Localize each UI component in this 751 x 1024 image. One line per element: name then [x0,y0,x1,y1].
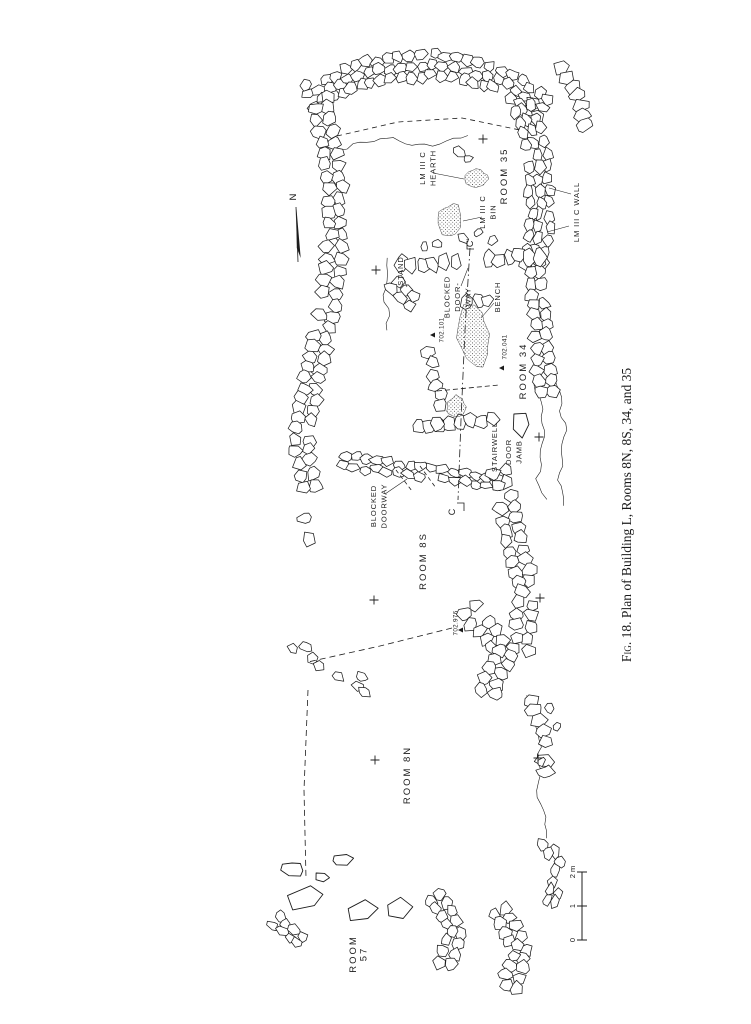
wall-room34-west-stones [421,347,448,432]
survey-cross [372,266,381,275]
stone [281,863,303,876]
stone [494,667,507,680]
stone [359,687,371,697]
survey-cross [479,135,488,144]
stone [525,267,537,280]
survey-cross [536,594,545,603]
wall-room57-east-cluster [426,889,467,971]
stone [438,253,450,271]
stone [357,671,369,681]
stone [523,609,538,621]
label-line: ROOM 8N [402,746,413,804]
stone [305,339,321,352]
label-line: JAMB [514,440,523,464]
site-plan-figure: LM III CHEARTHROOM 35LM III CBINLM III C… [0,0,751,1024]
stone [287,643,297,653]
stone [500,901,513,915]
scanned-figure-page: LM III CHEARTHROOM 35LM III CBINLM III C… [0,0,751,1024]
stone [405,63,417,72]
wall-divider-8s-8n [456,600,517,700]
elevation-value: 702.976 [453,610,460,635]
wall-west-wall [288,90,350,493]
label-lm-iiic-wall: LM III C WALL [572,182,581,242]
stone [474,229,483,237]
stone [493,481,506,491]
stone [315,274,332,287]
stone [414,49,428,60]
hearth-fill [465,169,489,188]
stone [444,416,456,431]
label-room-34: ROOM 34 [518,343,529,400]
label-line: DOOR [504,439,513,465]
label-door-jamb: DOORJAMB [504,439,524,465]
stone [524,218,534,231]
stone [522,644,536,657]
stone [525,174,535,186]
stone [533,220,543,233]
stone [525,621,537,634]
stone [533,374,546,387]
west-robbed [304,690,308,878]
label-line: STAIRWELL [490,422,499,472]
stone [471,481,482,490]
stone [304,532,316,547]
survey-cross [371,756,380,765]
survey-cross [370,596,379,605]
elevation-value: 702.101 [439,317,446,342]
wall-west-frag-8s [297,513,316,547]
stone [335,238,349,253]
label-line: BIN [488,204,497,219]
north-arrow: N [288,193,301,262]
svg-text:Fig. 18. Plan of Building L, R: Fig. 18. Plan of Building L, Rooms 8N, 8… [619,368,634,662]
stone [330,148,344,160]
section-marker-c: C [447,503,464,515]
stone [402,50,415,62]
stone [308,466,320,481]
stone [334,252,349,265]
stone [518,126,529,139]
wavy-line [341,136,468,151]
section-bracket [457,503,464,511]
label-bench: BENCH [493,282,502,313]
label-line: LM III C WALL [572,182,581,242]
stone [509,618,524,631]
scale-bar: 012 m [568,866,587,942]
label-stand: STAND [396,256,405,285]
stone [311,309,327,321]
svg-text:C: C [447,508,457,515]
stone [513,413,529,438]
stone [438,473,449,482]
stone [297,481,311,493]
label-room-8n: ROOM 8N [402,746,413,804]
stone [433,956,446,970]
label-lm-iiic-bin: LM III CBIN [478,195,498,228]
wavy-line [383,258,390,330]
wall-east-stones-lower [537,839,565,909]
label-room-35: ROOM 35 [499,148,510,205]
stone-walls [267,48,593,994]
stone [534,278,547,291]
stone [432,239,442,247]
wall-room57-west-cluster [267,910,308,947]
elevation-triangle-icon [499,366,504,371]
wall-ne-fragment [554,61,593,133]
stone [545,703,555,714]
stone [315,285,330,298]
label-line: BLOCKED [369,485,378,527]
stone [527,98,536,111]
stone [299,642,312,652]
stone [294,470,307,483]
stone [543,147,554,160]
label-line: BENCH [493,282,502,313]
stone [523,230,534,243]
stone [544,847,554,861]
stone [447,61,460,73]
wall-lm-iiic-east-wall [511,98,556,269]
section-marker-c-prime: C' [465,239,475,249]
label-line: LM III C [418,151,427,184]
scale-bar-label: 2 m [568,866,577,879]
stone [373,74,386,87]
stone [290,433,301,446]
wavy-line [534,382,547,499]
label-stairwell: STAIRWELL [490,422,499,472]
elevation-marker: 702.101 [430,317,446,342]
label-line: DOORWAY [379,484,388,529]
stone [545,185,556,196]
elevation-marker: 702.041 [499,334,509,370]
stone [508,512,523,523]
label-lm-iiic-hearth: LM III CHEARTH [418,150,438,186]
stone [406,72,418,85]
stone [308,104,323,114]
stone [500,980,513,992]
bin-fill [438,204,461,236]
stone [492,502,509,516]
stone [531,343,544,357]
figure-caption: Fig. 18. Plan of Building L, Rooms 8N, 8… [619,368,634,662]
scale-bar-label: 0 [568,938,577,942]
stone [480,482,493,489]
stone [535,121,547,134]
label-line: STAND [396,256,405,285]
wall-room34-north-wall-e [484,247,548,267]
stone [297,513,312,523]
label-line: HEARTH [428,150,437,186]
stone [527,331,541,342]
stone [316,873,330,882]
stone [528,208,538,220]
leader-line [461,268,468,286]
stone [337,180,350,194]
stone [309,480,323,492]
label-line: BLOCKED [443,276,452,318]
stone [512,595,524,609]
label-room-8s: ROOM 8S [418,532,429,590]
north-label: N [288,193,299,200]
wall-divider-west-scatter [287,642,370,697]
stone [323,111,336,126]
stone [328,299,342,313]
stone [536,765,556,778]
stone [381,456,394,466]
stone [434,399,447,412]
stone [437,945,448,957]
label-line: ROOM 8S [418,532,429,590]
stone [332,672,344,681]
survey-cross [535,433,544,442]
label-line: WAY [464,288,473,307]
stone [318,240,335,253]
divider-robbed [308,628,452,662]
stone [346,464,360,472]
stairwell-top [437,385,499,391]
stone [533,231,543,245]
stone [310,126,326,139]
stone [333,855,354,866]
stone [404,257,416,274]
stone [288,421,302,434]
stone [553,722,560,731]
stone [414,472,426,483]
stone [470,57,484,68]
stone [524,161,534,174]
stone [388,897,413,918]
leader-line [385,479,407,494]
stone [542,235,553,247]
stone [464,156,473,163]
stone [348,900,378,921]
leader-line [433,173,464,179]
north-arrow-head-icon [297,209,301,258]
stone [288,886,323,910]
stone [539,297,551,309]
stone [421,242,428,251]
stone [360,467,371,476]
label-line: ROOM 34 [518,343,529,400]
wall-stairwell-south-wall [336,452,504,491]
label-line: ROOM 35 [499,148,510,205]
wall-room57-se-cluster [489,901,532,995]
stone [326,124,341,139]
stone [289,446,303,457]
stone [488,235,498,245]
stone [539,135,550,148]
stone [310,394,324,408]
stone [453,146,465,157]
stone [511,632,523,644]
label-blocked-doorway-8s: BLOCKEDDOORWAY [369,484,389,529]
label-line: DOOR- [453,282,462,312]
label-line: ROOM [348,935,359,973]
stone [334,216,346,228]
stone [470,600,484,612]
room35-inner [337,118,520,136]
stone [451,253,461,269]
label-line: LM III C [478,195,487,228]
stone [535,386,548,398]
stone [487,687,502,700]
elevation-value: 702.041 [502,334,509,359]
label-room-57: ROOM57 [348,935,370,973]
stairwell-fill [447,395,467,418]
svg-text:C': C' [465,239,475,247]
stone [545,882,554,895]
stone [322,206,336,219]
scale-bar-label: 1 [568,904,577,908]
label-line: 57 [358,947,369,962]
stone [323,217,336,228]
elevation-triangle-icon [430,333,435,338]
